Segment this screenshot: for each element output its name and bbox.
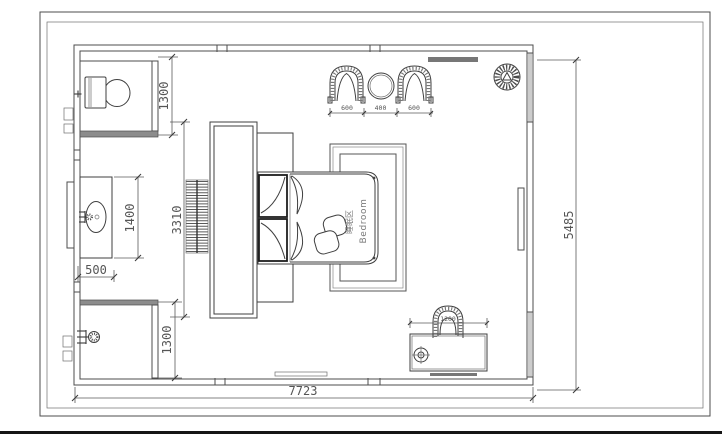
dim-overall-depth: 5485 [537, 57, 581, 393]
armchair-right [396, 66, 433, 103]
shower-room [77, 300, 158, 378]
dim-overall-width: 7723 [72, 384, 536, 403]
ceiling-fan-symbol [494, 64, 520, 90]
dim-dressing-desk: 1200 [408, 315, 489, 328]
armchair-left [328, 66, 365, 103]
floor-threshold [275, 372, 327, 376]
dim-text-7723: 7723 [289, 384, 318, 398]
dim-vanity-depth: 500 [75, 263, 117, 282]
dim-vanity-length: 1400 [114, 174, 144, 261]
dim-text-600-left: 600 [341, 104, 353, 112]
dim-text-1300-bottom: 1300 [160, 326, 174, 355]
pillow-top [259, 175, 287, 217]
left-wall-pocket [67, 182, 74, 248]
bed-corner-dot-top [373, 177, 376, 180]
bedroom-floor-plan: 1300 1300 1400 500 [0, 0, 722, 438]
dim-text-1300-top: 1300 [157, 82, 171, 111]
toilet-bowl [104, 80, 130, 107]
bathroom-block [75, 61, 159, 378]
bottom-rule [0, 431, 722, 434]
room-label-zh: 睡眠区 [345, 210, 354, 234]
bed-corner-dot-bottom [373, 257, 376, 260]
tv-hatch [186, 180, 208, 253]
window-right-top [527, 53, 533, 122]
dim-shower-depth: 1300 [158, 299, 182, 381]
dim-text-5485: 5485 [562, 211, 576, 240]
dim-text-1200: 1200 [440, 315, 456, 323]
left-wall-joints [63, 108, 80, 361]
toilet [75, 77, 131, 108]
desk-front-edge [430, 373, 477, 376]
dim-text-600-right: 600 [408, 104, 420, 112]
dim-toilet-depth: 1300 [157, 54, 178, 138]
toilet-room [75, 61, 159, 137]
headboard-partition [210, 122, 257, 318]
floor-plan-canvas: 1300 1300 1400 500 [0, 0, 722, 438]
dim-text-500: 500 [85, 263, 107, 277]
bed: 睡眠区 Bedroom [258, 172, 378, 264]
nightstand-bottom [257, 264, 293, 302]
nightstand-top [257, 133, 293, 172]
sink-drain [95, 215, 99, 219]
dim-text-1400: 1400 [123, 204, 137, 233]
vanity [79, 177, 112, 258]
faucet-icon [79, 211, 92, 223]
curtain-box [428, 57, 478, 62]
dressing-desk [410, 334, 487, 371]
toilet-tank [85, 77, 106, 108]
wall-recess [518, 188, 524, 250]
side-table [368, 73, 394, 99]
dim-text-3310: 3310 [170, 206, 184, 235]
dim-headboard-wall: 3310 [170, 119, 190, 320]
pillow-bottom [259, 219, 287, 261]
dim-text-400: 400 [375, 104, 387, 112]
window-right-bottom [527, 312, 533, 377]
dim-sitting-area: 600 400 600 [328, 104, 433, 117]
room-label-en: Bedroom [359, 199, 369, 244]
sink-basin [86, 202, 106, 233]
